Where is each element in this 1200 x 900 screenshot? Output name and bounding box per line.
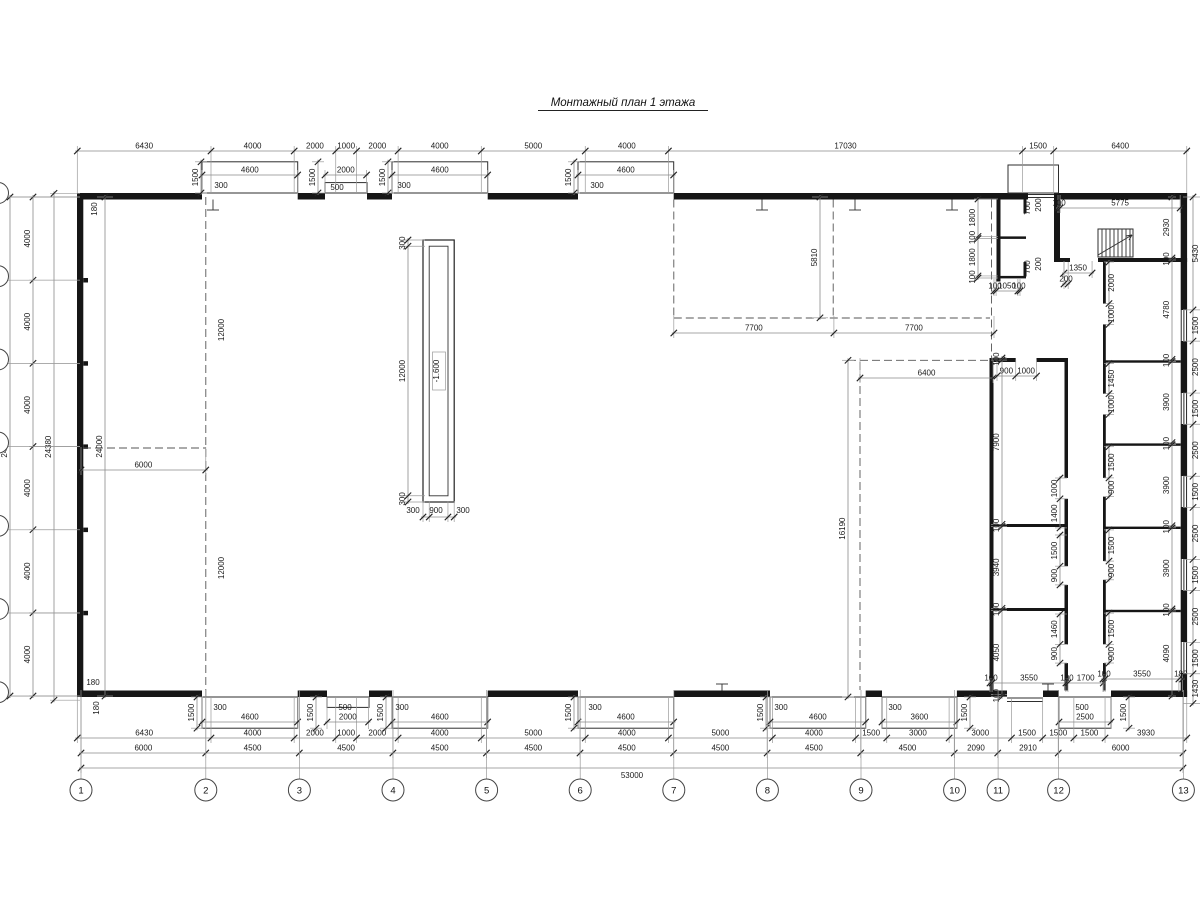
svg-text:3900: 3900 — [1162, 393, 1171, 411]
svg-text:4600: 4600 — [241, 713, 259, 722]
window-icon — [1181, 476, 1186, 507]
svg-text:-1.600: -1.600 — [432, 359, 441, 382]
svg-text:3550: 3550 — [1020, 674, 1038, 683]
svg-text:300: 300 — [213, 703, 227, 712]
svg-text:5775: 5775 — [1111, 199, 1129, 208]
svg-text:300: 300 — [774, 703, 788, 712]
svg-text:7: 7 — [671, 785, 676, 796]
svg-text:5430: 5430 — [1191, 244, 1200, 262]
svg-text:100: 100 — [984, 674, 998, 683]
svg-text:1500: 1500 — [1119, 703, 1128, 721]
svg-text:4: 4 — [390, 785, 395, 796]
svg-text:1500: 1500 — [306, 703, 315, 721]
svg-text:4000: 4000 — [618, 729, 636, 738]
svg-text:12000: 12000 — [217, 556, 226, 579]
svg-text:6400: 6400 — [1111, 142, 1129, 151]
svg-text:2090: 2090 — [967, 744, 985, 753]
svg-text:3: 3 — [297, 785, 302, 796]
svg-text:100: 100 — [1097, 670, 1111, 679]
svg-text:3600: 3600 — [911, 713, 929, 722]
svg-text:1400: 1400 — [1050, 504, 1059, 522]
axis-bubble-3: 3 — [288, 779, 310, 801]
svg-text:2000: 2000 — [1107, 273, 1116, 291]
svg-text:1800: 1800 — [968, 208, 977, 226]
svg-text:4500: 4500 — [711, 744, 729, 753]
svg-text:3900: 3900 — [1162, 559, 1171, 577]
svg-text:24000: 24000 — [95, 435, 104, 458]
column-icon — [849, 200, 861, 211]
svg-text:900: 900 — [1107, 480, 1116, 494]
axis-bubble-8: 8 — [756, 779, 778, 801]
svg-text:1500: 1500 — [1107, 619, 1116, 637]
svg-text:4500: 4500 — [337, 744, 355, 753]
svg-text:900: 900 — [1050, 568, 1059, 582]
free-dimension-labels: 1801801801200012000-1.600300900300300300… — [86, 181, 1089, 715]
svg-text:4000: 4000 — [23, 312, 32, 330]
axis-bubble-4: 4 — [382, 779, 404, 801]
svg-text:1000: 1000 — [1107, 395, 1116, 413]
axis-bubble-6: 6 — [569, 779, 591, 801]
svg-text:4600: 4600 — [241, 166, 259, 175]
svg-text:4500: 4500 — [899, 744, 917, 753]
svg-text:4500: 4500 — [524, 744, 542, 753]
svg-text:4000: 4000 — [23, 645, 32, 663]
svg-text:4000: 4000 — [431, 729, 449, 738]
svg-text:4600: 4600 — [617, 713, 635, 722]
svg-text:100: 100 — [992, 688, 1001, 702]
svg-text:4050: 4050 — [992, 643, 1001, 661]
svg-text:13: 13 — [1178, 785, 1189, 796]
svg-text:1700: 1700 — [1077, 674, 1095, 683]
svg-text:1800: 1800 — [968, 248, 977, 266]
svg-text:180: 180 — [86, 678, 100, 687]
svg-text:6000: 6000 — [134, 461, 152, 470]
svg-text:100: 100 — [1060, 674, 1074, 683]
walls — [77, 193, 1187, 697]
svg-text:300: 300 — [398, 492, 407, 506]
svg-text:3930: 3930 — [1137, 729, 1155, 738]
svg-text:100: 100 — [992, 602, 1001, 616]
svg-text:1: 1 — [78, 785, 83, 796]
svg-text:1000: 1000 — [1050, 479, 1059, 497]
svg-text:4600: 4600 — [617, 166, 635, 175]
axis-bubble-2: 2 — [195, 779, 217, 801]
svg-text:100: 100 — [1052, 199, 1066, 208]
svg-text:100: 100 — [1162, 436, 1171, 450]
svg-text:2910: 2910 — [1019, 744, 1037, 753]
svg-text:4000: 4000 — [431, 142, 449, 151]
svg-text:1500: 1500 — [308, 168, 317, 186]
svg-text:1500: 1500 — [1191, 399, 1200, 417]
svg-text:4600: 4600 — [809, 713, 827, 722]
svg-text:1500: 1500 — [1081, 729, 1099, 738]
svg-text:1000: 1000 — [337, 142, 355, 151]
svg-text:900: 900 — [429, 506, 443, 515]
svg-text:7900: 7900 — [992, 433, 1001, 451]
svg-text:300: 300 — [588, 703, 602, 712]
svg-text:2000: 2000 — [337, 166, 355, 175]
svg-text:2500: 2500 — [1191, 524, 1200, 542]
svg-text:2500: 2500 — [1191, 358, 1200, 376]
svg-text:6430: 6430 — [135, 729, 153, 738]
svg-text:100: 100 — [992, 518, 1001, 532]
svg-text:6: 6 — [578, 785, 583, 796]
svg-text:100: 100 — [968, 270, 977, 284]
svg-text:3000: 3000 — [909, 729, 927, 738]
svg-text:1500: 1500 — [1191, 482, 1200, 500]
svg-text:100: 100 — [992, 352, 1001, 366]
svg-text:4000: 4000 — [23, 479, 32, 497]
svg-text:4000: 4000 — [23, 562, 32, 580]
svg-text:1500: 1500 — [862, 729, 880, 738]
svg-text:10: 10 — [949, 785, 960, 796]
svg-text:12000: 12000 — [217, 318, 226, 341]
svg-text:53000: 53000 — [621, 771, 644, 780]
dashed-axes — [83, 197, 992, 697]
svg-text:500: 500 — [1075, 703, 1089, 712]
axis-bubble-11: 11 — [987, 779, 1009, 801]
svg-text:2000: 2000 — [306, 729, 324, 738]
svg-text:500: 500 — [338, 703, 352, 712]
svg-text:3940: 3940 — [992, 558, 1001, 576]
svg-text:1500: 1500 — [378, 168, 387, 186]
svg-text:180: 180 — [90, 202, 99, 216]
svg-text:180: 180 — [92, 701, 101, 715]
svg-text:700: 700 — [1023, 201, 1032, 215]
svg-text:3000: 3000 — [971, 729, 989, 738]
svg-text:16190: 16190 — [838, 517, 847, 540]
axis-bubble-10: 10 — [944, 779, 966, 801]
axis-bubble-12: 12 — [1048, 779, 1070, 801]
window-icon — [1181, 393, 1186, 424]
svg-text:1500: 1500 — [187, 703, 196, 721]
window-icon — [1181, 559, 1186, 590]
column-icon — [1042, 684, 1054, 691]
svg-text:1350: 1350 — [1069, 264, 1087, 273]
entrance-canopy — [1008, 165, 1059, 193]
svg-text:200: 200 — [1059, 275, 1073, 284]
svg-text:4000: 4000 — [23, 229, 32, 247]
svg-text:1450: 1450 — [1107, 369, 1116, 387]
svg-text:100: 100 — [1012, 282, 1026, 291]
svg-text:900: 900 — [1107, 563, 1116, 577]
column-icon — [946, 200, 958, 211]
svg-text:4000: 4000 — [805, 729, 823, 738]
svg-text:3550: 3550 — [1133, 670, 1151, 679]
svg-text:4500: 4500 — [805, 744, 823, 753]
svg-text:1000: 1000 — [337, 729, 355, 738]
svg-text:300: 300 — [397, 181, 411, 190]
svg-text:1500: 1500 — [191, 168, 200, 186]
svg-text:100: 100 — [1162, 603, 1171, 617]
svg-text:3900: 3900 — [1162, 476, 1171, 494]
floor-plan-canvas: 6430400020001000200040005000400017030150… — [0, 0, 1200, 900]
svg-text:1500: 1500 — [1107, 536, 1116, 554]
svg-text:6400: 6400 — [918, 369, 936, 378]
window-icon — [1181, 642, 1186, 673]
svg-text:300: 300 — [888, 703, 902, 712]
svg-text:4600: 4600 — [431, 713, 449, 722]
svg-text:4000: 4000 — [23, 395, 32, 413]
svg-text:1430: 1430 — [1191, 679, 1200, 697]
axis-bubble-7: 7 — [663, 779, 685, 801]
svg-text:4000: 4000 — [244, 142, 262, 151]
axis-bubble-1: 1 — [70, 779, 92, 801]
svg-text:100: 100 — [1162, 252, 1171, 266]
svg-text:500: 500 — [330, 183, 344, 192]
svg-text:4500: 4500 — [244, 744, 262, 753]
column-icon — [716, 684, 728, 691]
svg-text:12000: 12000 — [398, 359, 407, 382]
svg-text:100: 100 — [1162, 353, 1171, 367]
svg-text:100: 100 — [968, 230, 977, 244]
svg-text:2500: 2500 — [1191, 607, 1200, 625]
svg-text:4600: 4600 — [431, 166, 449, 175]
svg-text:5000: 5000 — [524, 729, 542, 738]
svg-text:2000: 2000 — [306, 142, 324, 151]
svg-text:4000: 4000 — [244, 729, 262, 738]
svg-text:6000: 6000 — [1112, 744, 1130, 753]
svg-text:300: 300 — [590, 181, 604, 190]
svg-text:4000: 4000 — [618, 142, 636, 151]
svg-text:5000: 5000 — [711, 729, 729, 738]
svg-text:5810: 5810 — [810, 248, 819, 266]
svg-text:2000: 2000 — [339, 713, 357, 722]
svg-text:1500: 1500 — [756, 703, 765, 721]
axis-bubble-13: 13 — [1172, 779, 1194, 801]
svg-text:4500: 4500 — [431, 744, 449, 753]
svg-text:700: 700 — [1023, 260, 1032, 274]
drawing-sheet: Монтажный план 1 этажа — [0, 0, 1200, 900]
svg-text:1500: 1500 — [1191, 649, 1200, 667]
svg-text:2500: 2500 — [1191, 441, 1200, 459]
svg-text:300: 300 — [398, 236, 407, 250]
svg-text:900: 900 — [1107, 646, 1116, 660]
svg-text:2000: 2000 — [368, 142, 386, 151]
svg-text:2500: 2500 — [1076, 713, 1094, 722]
svg-text:6000: 6000 — [134, 744, 152, 753]
svg-text:1460: 1460 — [1050, 620, 1059, 638]
svg-text:300: 300 — [456, 506, 470, 515]
svg-text:1500: 1500 — [1107, 453, 1116, 471]
svg-text:100: 100 — [1162, 520, 1171, 534]
svg-text:1500: 1500 — [564, 703, 573, 721]
svg-text:6430: 6430 — [135, 142, 153, 151]
svg-text:1500: 1500 — [1018, 729, 1036, 738]
stairs-icon — [1098, 229, 1133, 257]
svg-text:1000: 1000 — [1107, 305, 1116, 323]
svg-text:8: 8 — [765, 785, 770, 796]
svg-text:1500: 1500 — [564, 168, 573, 186]
svg-text:200: 200 — [1034, 257, 1043, 271]
svg-text:5000: 5000 — [524, 142, 542, 151]
svg-text:300: 300 — [395, 703, 409, 712]
svg-text:1500: 1500 — [960, 703, 969, 721]
svg-text:4780: 4780 — [1162, 300, 1171, 318]
svg-text:4500: 4500 — [618, 744, 636, 753]
svg-text:7700: 7700 — [745, 324, 763, 333]
svg-text:9: 9 — [858, 785, 863, 796]
svg-text:1000: 1000 — [1017, 367, 1035, 376]
svg-text:1500: 1500 — [1029, 142, 1047, 151]
svg-text:7700: 7700 — [905, 324, 923, 333]
axis-bubble-5: 5 — [476, 779, 498, 801]
svg-text:1500: 1500 — [376, 703, 385, 721]
column-icon — [756, 200, 768, 211]
svg-text:300: 300 — [214, 181, 228, 190]
svg-text:5: 5 — [484, 785, 489, 796]
svg-text:1500: 1500 — [1191, 316, 1200, 334]
svg-text:900: 900 — [1050, 646, 1059, 660]
svg-text:2: 2 — [203, 785, 208, 796]
svg-text:2930: 2930 — [1162, 218, 1171, 236]
svg-text:300: 300 — [406, 506, 420, 515]
svg-text:4090: 4090 — [1162, 644, 1171, 662]
svg-text:1500: 1500 — [1050, 541, 1059, 559]
svg-text:200: 200 — [1034, 198, 1043, 212]
svg-text:12: 12 — [1053, 785, 1064, 796]
svg-text:17030: 17030 — [834, 142, 857, 151]
column-icon — [207, 200, 219, 211]
svg-text:1500: 1500 — [1191, 566, 1200, 584]
svg-text:11: 11 — [993, 785, 1003, 796]
window-icon — [1181, 310, 1186, 341]
axis-bubble-9: 9 — [850, 779, 872, 801]
